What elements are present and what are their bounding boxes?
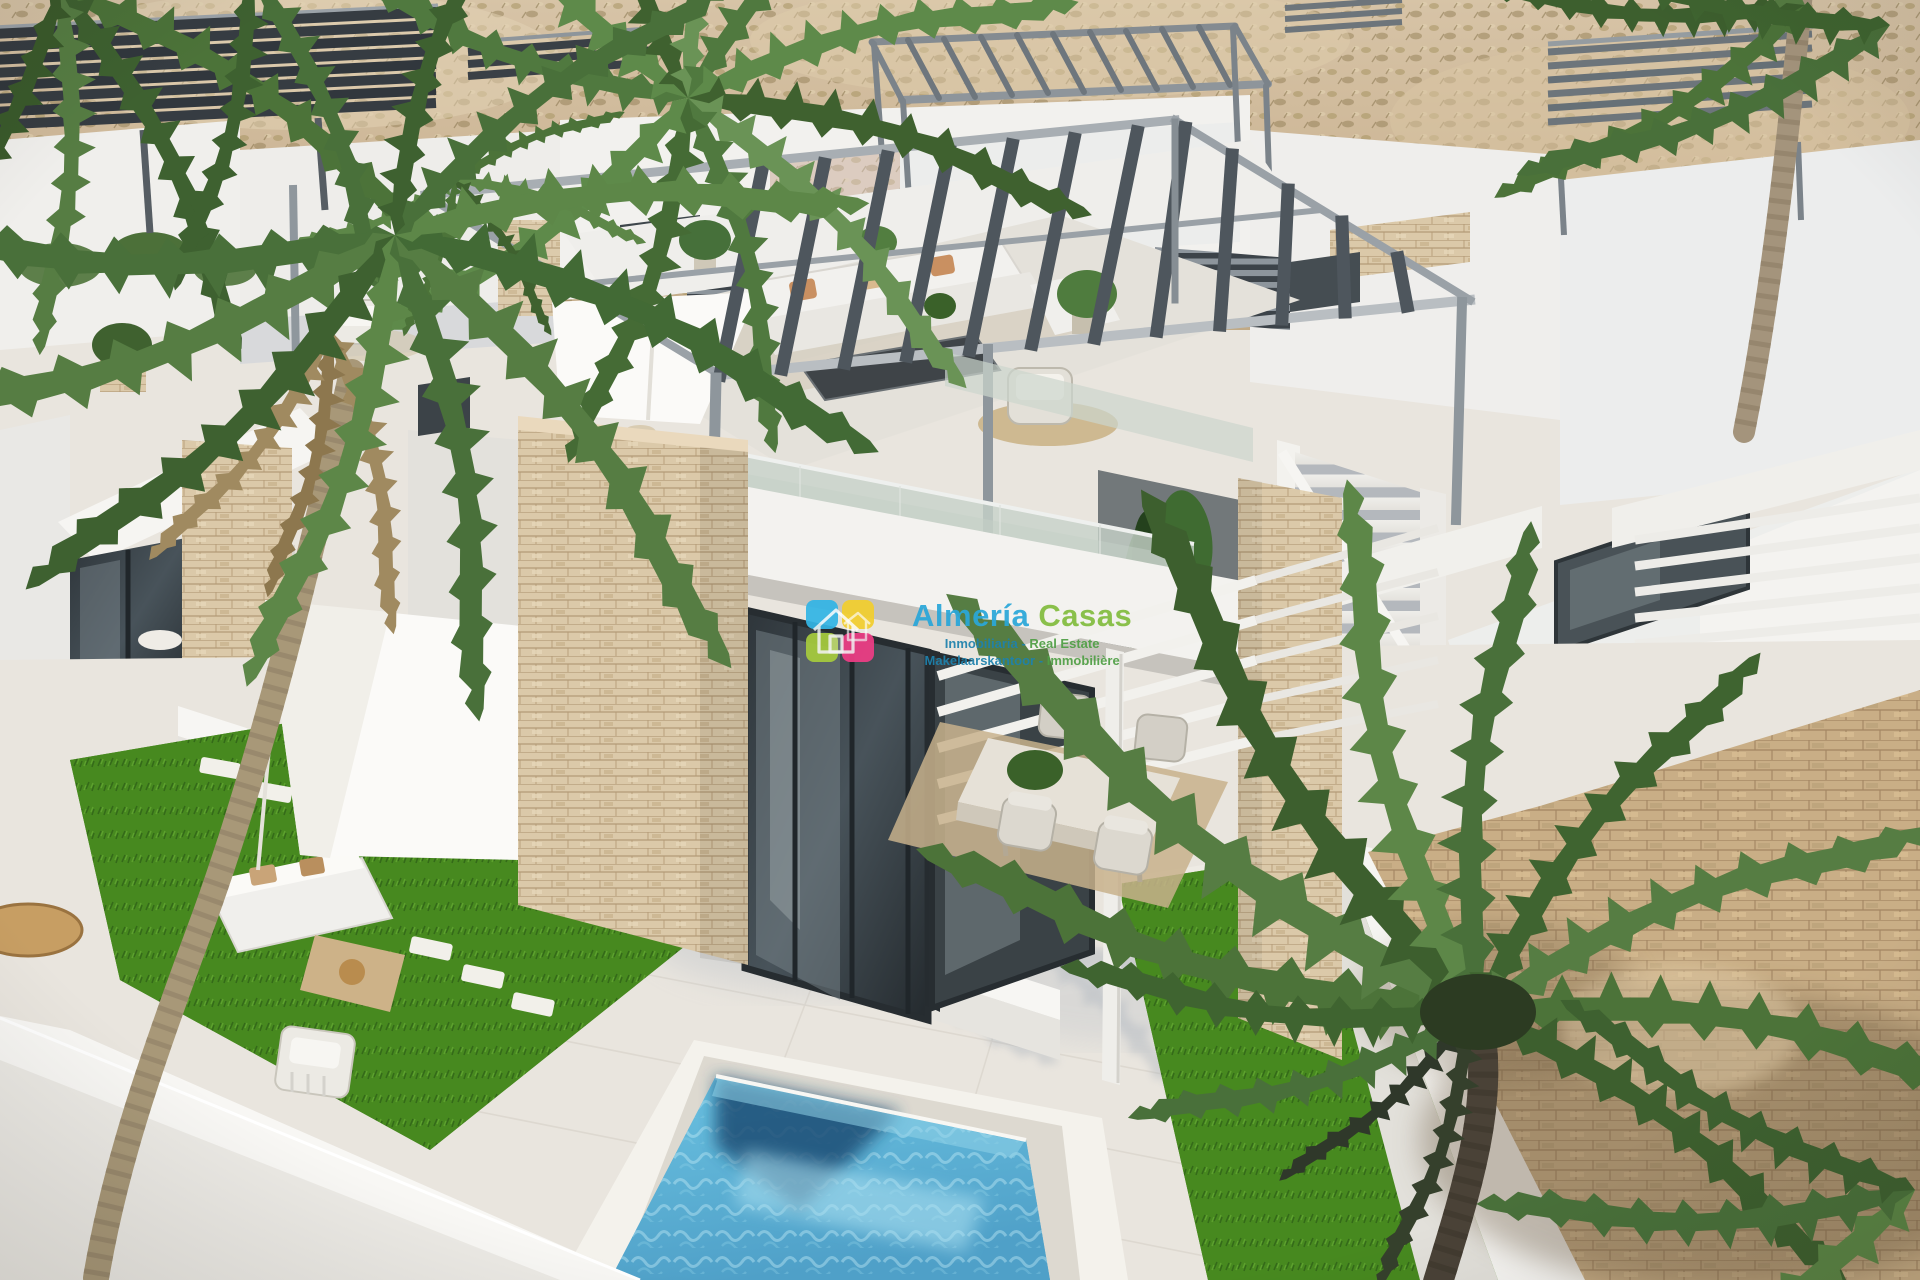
vignette-overlay — [0, 0, 1920, 1280]
render-image — [0, 0, 1920, 1280]
villa-render-scene: Almería Casas Inmobiliaria - Real Estate… — [0, 0, 1920, 1280]
